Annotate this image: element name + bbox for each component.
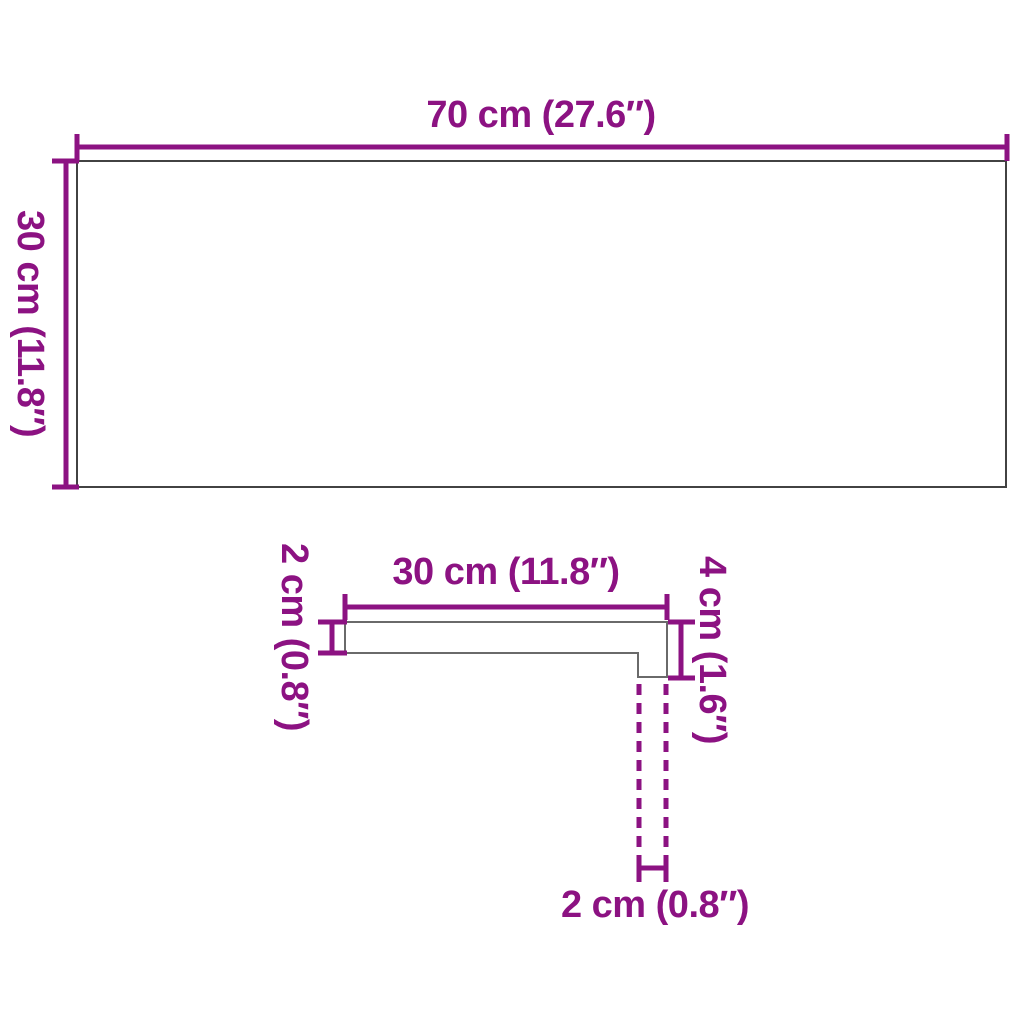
diagram-drawing [0,0,1024,1024]
side-depth-label: 30 cm (11.8″) [306,553,706,591]
top-height-dimension [52,161,79,487]
nose-projection-lines [639,684,666,856]
side-view-outline [345,622,667,677]
top-height-label: 30 cm (11.8″) [4,161,56,487]
side-depth-dimension [345,594,667,620]
dimension-diagram: 70 cm (27.6″) 30 cm (11.8″) 30 cm (11.8″… [0,0,1024,1024]
top-width-dimension [77,134,1007,161]
side-thickness-label: 2 cm (0.8″) [270,527,318,747]
top-view-outline [77,161,1006,487]
nose-width-dimension [639,855,666,882]
side-thickness-dimension [318,622,347,653]
side-nose-height-label-text: 4 cm (1.6″) [693,556,731,744]
nose-width-label: 2 cm (0.8″) [455,886,855,924]
top-height-label-text: 30 cm (11.8″) [11,210,49,437]
side-thickness-label-text: 2 cm (0.8″) [275,543,313,731]
side-nose-height-label: 4 cm (1.6″) [688,540,736,760]
top-width-label: 70 cm (27.6″) [141,96,941,134]
